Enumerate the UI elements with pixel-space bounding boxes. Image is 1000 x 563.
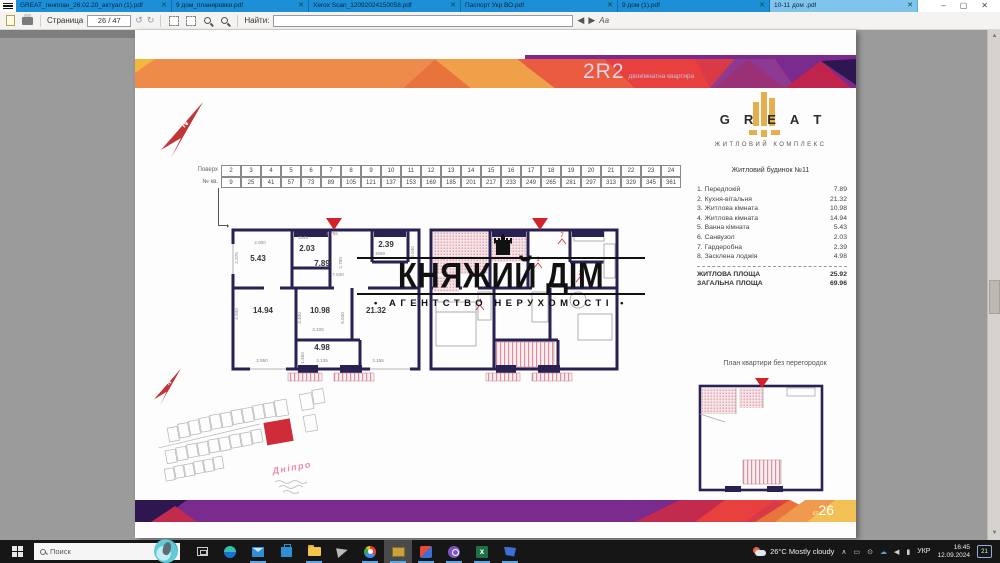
excel-icon: x — [476, 546, 488, 558]
apartment-cell: 89 — [321, 177, 341, 189]
room-name: 4. Житлова кімната — [697, 214, 758, 224]
page-label: Страница — [47, 16, 83, 25]
room-name: 7. Гардеробна — [697, 243, 742, 253]
floor-cell: 16 — [501, 165, 521, 177]
notification-center-icon[interactable]: 21 — [977, 545, 992, 558]
pdf-reader-icon — [392, 547, 405, 557]
system-tray: 26°C Mostly cloudy ∧ ▭ ⊙ ☁ ◀ ▮ УКР 16:45… — [752, 544, 1000, 560]
watermark-subtitle: • АГЕНТСТВО НЕРУХОМОСТІ • — [357, 298, 645, 309]
document-tab[interactable]: Паспорт Укр ВО.pdf ✕ — [461, 0, 618, 12]
floor-cell: 22 — [621, 165, 641, 177]
tab-label: 10-11 дом .pdf — [774, 0, 816, 12]
svg-text:4.98: 4.98 — [314, 343, 330, 352]
floor-cells: 23456789101112131415161718192021222324 — [221, 165, 681, 177]
room-row: 2. Кухня-вітальня 21.32 — [697, 195, 847, 205]
close-button[interactable]: ✕ — [981, 2, 988, 10]
document-icon — [6, 15, 15, 26]
logo-letter: A — [790, 112, 799, 127]
zoom-out-button[interactable] — [201, 14, 214, 27]
castle-icon — [490, 233, 512, 255]
entrance-door-marker — [326, 218, 342, 230]
fit-page-button[interactable] — [167, 14, 180, 27]
total-area: 25.92 — [830, 270, 847, 280]
print-button[interactable] — [21, 14, 34, 27]
fit-width-icon — [186, 16, 196, 26]
apartment-cell: 105 — [341, 177, 361, 189]
svg-text:7.630: 7.630 — [332, 272, 344, 277]
total-row: ЖИТЛОВА ПЛОЩА 25.92 — [697, 270, 847, 280]
floor-cell: 19 — [561, 165, 581, 177]
room-area: 7.89 — [834, 185, 847, 195]
floor-cell: 14 — [461, 165, 481, 177]
folder-icon — [308, 547, 321, 556]
open-plan-label: План квартири без перегородок — [695, 360, 855, 367]
window-tab-bar: GREAT_генплан_26.02.20_актуал (1).pdf ✕ … — [0, 0, 1000, 12]
room-name: 8. Засклена лоджія — [697, 252, 757, 262]
room-row: 4. Житлова кімната 14.94 — [697, 214, 847, 224]
footer-banner — [135, 500, 856, 522]
tab-close-icon[interactable]: ✕ — [907, 0, 913, 12]
document-tab[interactable]: 10-11 дом .pdf ✕ — [770, 0, 918, 12]
tab-label: 9 дом_планировки.pdf — [176, 0, 243, 12]
apartment-cells: 9254157738910512113715316918520121723324… — [221, 177, 681, 189]
pdf-page: 2R2 двокімнатна квартира GREAT ЖИТЛОВИЙ … — [135, 30, 856, 538]
pdf-reader-button[interactable] — [384, 540, 412, 563]
floor-cell: 4 — [261, 165, 281, 177]
store-button[interactable] — [272, 540, 300, 563]
tray-date: 12.09.2024 — [937, 552, 970, 560]
tab-close-icon[interactable]: ✕ — [298, 0, 304, 12]
floor-row-label: Поверх — [195, 165, 221, 177]
history-back-icon[interactable]: ↺ — [135, 15, 143, 26]
viewer-app-icon — [336, 545, 349, 557]
excel-button[interactable]: x — [468, 540, 496, 563]
floor-cell: 6 — [301, 165, 321, 177]
zoom-in-button[interactable] — [218, 14, 231, 27]
floor-cell: 20 — [581, 165, 601, 177]
svg-text:2.03: 2.03 — [299, 244, 315, 253]
totals-rows: ЖИТЛОВА ПЛОЩА 25.92 ЗАГАЛЬНА ПЛОЩА 69.96 — [697, 270, 847, 289]
apartment-code-subtitle: двокімнатна квартира — [629, 73, 695, 80]
tray-time: 16:45 — [937, 544, 970, 552]
tab-close-icon[interactable]: ✕ — [161, 0, 167, 12]
document-tab[interactable]: Xerox Scan_12092024150058.pdf ✕ — [309, 0, 461, 12]
floor-cell: 12 — [421, 165, 441, 177]
page-number-input[interactable]: 26 / 47 — [87, 15, 131, 27]
history-forward-icon[interactable]: ↻ — [147, 15, 155, 26]
floor-cell: 13 — [441, 165, 461, 177]
svg-text:4.940: 4.940 — [234, 308, 239, 320]
floor-cell: 7 — [321, 165, 341, 177]
onedrive-icon[interactable]: ☁ — [880, 548, 887, 556]
svg-text:1.460: 1.460 — [300, 352, 305, 364]
apartment-row: № кв. 9254157738910512113715316918520121… — [195, 177, 681, 189]
document-tab[interactable]: GREAT_генплан_26.02.20_актуал (1).pdf ✕ — [16, 0, 172, 12]
room-name: 3. Житлова кімната — [697, 204, 758, 214]
find-next-icon[interactable]: ▶ — [588, 15, 595, 26]
remote-desktop-button[interactable] — [496, 540, 524, 563]
floor-cell: 5 — [281, 165, 301, 177]
floor-cell: 21 — [601, 165, 621, 177]
fit-page-icon — [169, 16, 179, 26]
zoom-in-icon — [221, 17, 228, 24]
room-area: 5.43 — [834, 223, 847, 233]
total-row: ЗАГАЛЬНА ПЛОЩА 69.96 — [697, 279, 847, 289]
room-name: 5. Ванна кімната — [697, 223, 749, 233]
header-banner — [135, 55, 856, 88]
apartment-cell: 9 — [221, 177, 241, 189]
document-tabs: GREAT_генплан_26.02.20_актуал (1).pdf ✕ … — [16, 0, 918, 12]
room-area: 21.32 — [830, 195, 847, 205]
svg-text:5.43: 5.43 — [250, 254, 266, 263]
logo-letter: G — [720, 112, 730, 127]
svg-text:10.98: 10.98 — [310, 306, 331, 315]
apartment-cell: 57 — [281, 177, 301, 189]
battery-icon[interactable]: ▮ — [906, 548, 910, 556]
toolbar-separator — [40, 15, 41, 27]
entrance-door-marker — [532, 218, 548, 230]
floor-cell: 15 — [481, 165, 501, 177]
totals-divider — [697, 266, 847, 267]
floor-cell: 8 — [341, 165, 361, 177]
floor-cell: 23 — [641, 165, 661, 177]
logo-letter: R — [744, 112, 753, 127]
chrome-button[interactable] — [356, 540, 384, 563]
table-connector-line — [218, 188, 228, 226]
svg-text:2.000: 2.000 — [254, 240, 266, 245]
room-area: 10.98 — [830, 204, 847, 214]
site-master-plan: Дніпро — [155, 388, 345, 506]
room-rows: 1. Передпокій 7.89 2. Кухня-вітальня 21.… — [697, 185, 847, 262]
apartment-cell: 345 — [641, 177, 661, 189]
room-row: 6. Санвузол 2.03 — [697, 233, 847, 243]
tab-label: Xerox Scan_12092024150058.pdf — [313, 0, 412, 12]
task-view-button[interactable] — [188, 540, 216, 563]
remote-desktop-icon — [504, 547, 516, 557]
search-placeholder: Поиск — [50, 547, 71, 556]
logo-letters: GREAT — [693, 112, 848, 127]
svg-text:7.89: 7.89 — [314, 259, 330, 268]
apartment-cell: 73 — [301, 177, 321, 189]
floor-cell: 18 — [541, 165, 561, 177]
floor-row: Поверх 234567891011121314151617181920212… — [195, 165, 681, 177]
room-row: 3. Житлова кімната 10.98 — [697, 204, 847, 214]
logo-bar — [761, 130, 767, 137]
tab-label: 9 дом (1).pdf — [622, 0, 660, 12]
total-name: ЗАГАЛЬНА ПЛОЩА — [697, 279, 763, 289]
apartment-cell: 233 — [501, 177, 521, 189]
agency-watermark: КНЯЖИЙ ДІМ • АГЕНТСТВО НЕРУХОМОСТІ • — [357, 233, 645, 309]
document-tab[interactable]: 9 дом_планировки.pdf ✕ — [172, 0, 309, 12]
apartment-cell: 297 — [581, 177, 601, 189]
tab-close-icon[interactable]: ✕ — [450, 0, 456, 12]
tray-expand-icon[interactable]: ∧ — [841, 548, 846, 556]
security-icon[interactable]: ⊙ — [867, 548, 873, 556]
logo-letter: T — [813, 112, 821, 127]
language-indicator[interactable]: УКР — [917, 548, 930, 555]
match-case-icon[interactable]: Aa — [599, 16, 609, 25]
photos-button[interactable] — [412, 540, 440, 563]
windows-logo-icon — [12, 546, 23, 557]
tab-close-icon[interactable]: ✕ — [607, 0, 613, 12]
svg-text:3.105: 3.105 — [312, 327, 324, 332]
river-label: Дніпро — [271, 459, 313, 476]
room-name: 1. Передпокій — [697, 185, 740, 195]
search-daily-image[interactable] — [154, 539, 178, 563]
logo-tagline: ЖИТЛОВИЙ КОМПЛЕКС — [693, 142, 848, 148]
file-explorer-button[interactable] — [300, 540, 328, 563]
floor-cell: 10 — [381, 165, 401, 177]
apartment-row-label: № кв. — [195, 177, 221, 189]
photos-icon — [420, 546, 432, 558]
task-view-icon — [197, 547, 208, 556]
highlighted-building — [264, 419, 293, 445]
viber-icon — [448, 546, 460, 558]
logo-bar — [771, 130, 780, 135]
apartment-cell: 153 — [401, 177, 421, 189]
room-row: 7. Гардеробна 2.39 — [697, 243, 847, 253]
svg-text:3.155: 3.155 — [372, 358, 384, 363]
apartment-cell: 313 — [601, 177, 621, 189]
chrome-icon — [364, 546, 376, 558]
apartment-cell: 217 — [481, 177, 501, 189]
store-icon — [281, 547, 292, 557]
apartment-code-block: 2R2 двокімнатна квартира — [583, 60, 694, 84]
total-area: 69.96 — [830, 279, 847, 289]
total-name: ЖИТЛОВА ПЛОЩА — [697, 270, 760, 280]
windows-taskbar: Поиск x 26°C Mostly cloudy ∧ ▭ ⊙ ☁ ◀ ▮ У… — [0, 540, 1000, 563]
room-area: 4.98 — [834, 252, 847, 262]
apartment-cell: 185 — [441, 177, 461, 189]
fit-width-button[interactable] — [184, 14, 197, 27]
pdf-content-area: 2R2 двокімнатна квартира GREAT ЖИТЛОВИЙ … — [0, 30, 1000, 540]
printer-icon — [22, 17, 33, 25]
svg-text:3.135: 3.135 — [316, 358, 328, 363]
tab-label: GREAT_генплан_26.02.20_актуал (1).pdf — [20, 0, 143, 12]
weather-text: 26°C Mostly cloudy — [770, 547, 834, 556]
toolbar-separator — [160, 15, 161, 27]
scroll-up-icon[interactable]: ▲ — [988, 30, 1000, 43]
svg-text:1545: 1545 — [298, 235, 309, 240]
hamburger-menu-icon[interactable] — [0, 0, 16, 12]
apartment-cell: 169 — [421, 177, 441, 189]
svg-text:3.400: 3.400 — [297, 312, 302, 324]
floor-apartment-table: Поверх 234567891011121314151617181920212… — [195, 165, 681, 188]
viewer-app-button[interactable] — [328, 540, 356, 563]
svg-text:2.950: 2.950 — [256, 358, 268, 363]
apartment-cell: 249 — [521, 177, 541, 189]
edge-button[interactable] — [216, 540, 244, 563]
svg-text:1.755: 1.755 — [326, 231, 338, 236]
svg-text:5.040: 5.040 — [340, 312, 345, 324]
north-compass-icon: N — [157, 98, 209, 160]
room-row: 1. Передпокій 7.89 — [697, 185, 847, 195]
minimize-button[interactable]: – — [941, 2, 945, 10]
open-document-button[interactable] — [4, 14, 17, 27]
taskbar-search[interactable]: Поиск — [34, 543, 180, 560]
floor-cell: 11 — [401, 165, 421, 177]
logo-letter: E — [767, 112, 776, 127]
find-label: Найти: — [244, 16, 269, 25]
apartment-cell: 281 — [561, 177, 581, 189]
svg-text:14.94: 14.94 — [253, 306, 274, 315]
room-area: 14.94 — [830, 214, 847, 224]
room-area: 2.39 — [834, 243, 847, 253]
toolbar-separator — [237, 15, 238, 27]
viber-button[interactable] — [440, 540, 468, 563]
apartment-code: 2R2 — [583, 60, 625, 84]
apartment-cell: 41 — [261, 177, 281, 189]
pdf-toolbar: Страница 26 / 47 ↺ ↻ Найти: ◀ ▶ Aa — [0, 12, 1000, 30]
svg-text:2.780: 2.780 — [338, 257, 343, 269]
mail-button[interactable] — [244, 540, 272, 563]
floor-cell: 24 — [661, 165, 681, 177]
building-title: Житловий будинок №11 — [693, 167, 848, 174]
scroll-down-icon[interactable]: ▼ — [988, 527, 1000, 540]
room-row: 5. Ванна кімната 5.43 — [697, 223, 847, 233]
room-name: 6. Санвузол — [697, 233, 735, 243]
weather-icon — [752, 547, 766, 557]
room-area: 2.03 — [834, 233, 847, 243]
room-name: 2. Кухня-вітальня — [697, 195, 752, 205]
apartment-cell: 329 — [621, 177, 641, 189]
page-number: ст26 — [813, 502, 834, 518]
display-icon[interactable]: ▭ — [854, 548, 861, 556]
floor-cell: 17 — [521, 165, 541, 177]
apartment-cell: 25 — [241, 177, 261, 189]
weather-widget[interactable]: 26°C Mostly cloudy — [752, 547, 834, 557]
apartment-cell: 201 — [461, 177, 481, 189]
apartment-cell: 121 — [361, 177, 381, 189]
svg-text:2.370: 2.370 — [234, 252, 239, 264]
tab-close-icon[interactable]: ✕ — [759, 0, 765, 12]
vertical-scrollbar[interactable]: ▲ ▼ — [987, 30, 1000, 540]
volume-icon[interactable]: ◀ — [894, 548, 899, 556]
floor-cell: 2 — [221, 165, 241, 177]
zoom-out-icon — [204, 17, 211, 24]
start-button[interactable] — [0, 540, 34, 563]
apartment-cell: 137 — [381, 177, 401, 189]
logo-bar — [749, 130, 757, 135]
page-number-value: 26 — [818, 502, 834, 518]
tab-label: Паспорт Укр ВО.pdf — [465, 0, 524, 12]
edge-icon — [224, 546, 236, 558]
watermark-title: КНЯЖИЙ ДІМ — [357, 256, 645, 295]
search-icon — [40, 549, 46, 555]
taskbar-app-icons: x — [188, 540, 524, 563]
document-tab[interactable]: 9 дом (1).pdf ✕ — [618, 0, 770, 12]
room-row: 8. Засклена лоджія 4.98 — [697, 252, 847, 262]
great-logo: GREAT ЖИТЛОВИЙ КОМПЛЕКС — [693, 90, 848, 158]
apartment-cell: 361 — [661, 177, 681, 189]
clock[interactable]: 16:45 12.09.2024 — [937, 544, 970, 560]
floor-plan-open — [695, 374, 827, 498]
floor-cell: 3 — [241, 165, 261, 177]
maximize-button[interactable]: ▢ — [960, 2, 968, 10]
find-input[interactable] — [273, 15, 573, 27]
floor-cell: 9 — [361, 165, 381, 177]
find-previous-icon[interactable]: ◀ — [577, 15, 584, 26]
room-list: 1. Передпокій 7.89 2. Кухня-вітальня 21.… — [697, 185, 847, 289]
window-controls: – ▢ ✕ — [941, 0, 1000, 12]
scrollbar-thumb[interactable] — [989, 280, 1000, 314]
mail-icon — [252, 547, 264, 557]
apartment-cell: 265 — [541, 177, 561, 189]
